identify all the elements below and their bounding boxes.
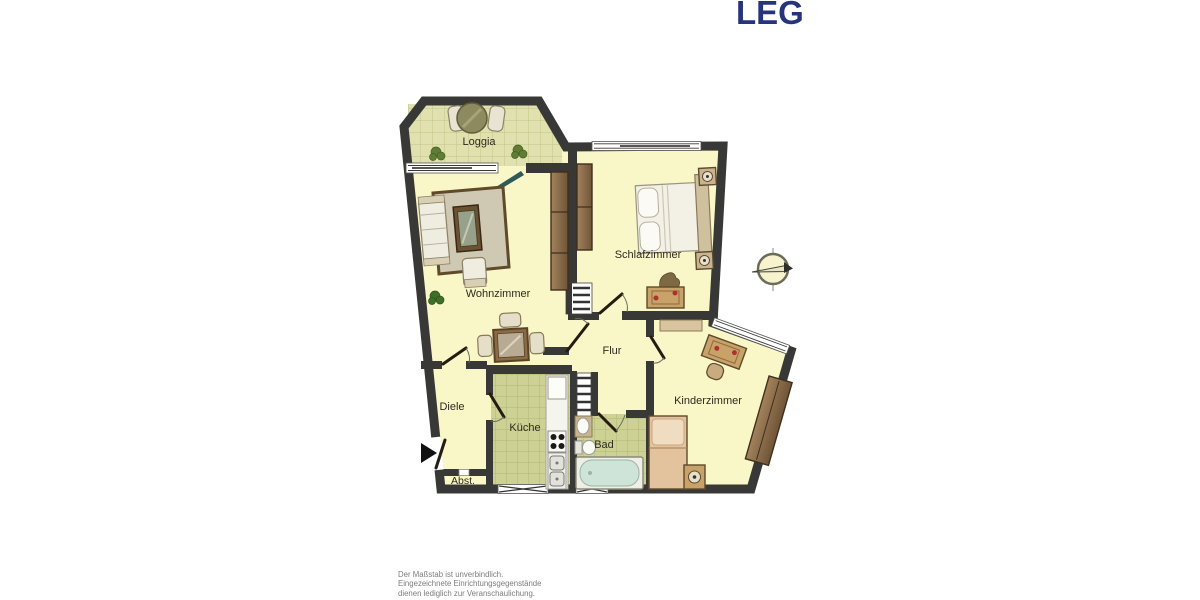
label-diele: Diele xyxy=(439,401,464,413)
disclaimer-line: dienen lediglich zur Veranschaulichung. xyxy=(398,589,541,598)
sideboard xyxy=(660,320,702,331)
loggia-chair xyxy=(487,105,505,132)
kueche-window xyxy=(498,485,548,494)
dining-chair xyxy=(477,335,492,357)
sofa xyxy=(418,195,450,266)
bathtub xyxy=(576,457,643,489)
disclaimer-text: Der Maßstab ist unverbindlich. Eingezeic… xyxy=(398,570,541,598)
dining-chair xyxy=(529,332,544,354)
wohnzimmer-loggia-window xyxy=(406,163,498,173)
disclaimer-line: Eingezeichnete Einrichtungsgegenstände xyxy=(398,579,541,588)
floorplan-drawing: Loggia Wohnzimmer Schlafzimmer Flur Diel… xyxy=(0,0,1200,600)
floor-areas xyxy=(404,101,791,489)
armchair xyxy=(462,257,487,288)
label-flur: Flur xyxy=(603,345,622,357)
label-schlafzimmer: Schlafzimmer xyxy=(615,249,682,261)
disclaimer-line: Der Maßstab ist unverbindlich. xyxy=(398,570,541,579)
label-kinderzimmer: Kinderzimmer xyxy=(674,395,742,407)
bathroom-sink xyxy=(575,416,592,437)
wall-cabinet xyxy=(551,172,568,290)
kueche-furniture xyxy=(546,375,568,489)
nightstand xyxy=(699,168,717,186)
label-wohnzimmer: Wohnzimmer xyxy=(466,288,531,300)
nightstand xyxy=(684,465,705,489)
coffee-table xyxy=(453,205,482,252)
floorplan-page: LEG xyxy=(0,0,1200,600)
label-bad: Bad xyxy=(594,439,614,451)
label-kueche: Küche xyxy=(509,422,540,434)
compass-icon xyxy=(752,248,793,291)
kitchen-sink xyxy=(548,453,566,489)
installation-shaft-icon xyxy=(566,283,592,314)
fridge xyxy=(548,377,566,399)
dining-chair xyxy=(499,312,521,327)
nightstand xyxy=(696,252,714,270)
toilet xyxy=(575,441,596,455)
schlafzimmer-window xyxy=(592,142,701,151)
label-loggia: Loggia xyxy=(462,136,496,148)
wardrobe xyxy=(577,164,592,250)
stove xyxy=(548,431,566,452)
child-bed xyxy=(649,416,687,489)
label-abstellraum: Abst. xyxy=(451,475,475,487)
installation-shaft-icon xyxy=(577,373,591,416)
